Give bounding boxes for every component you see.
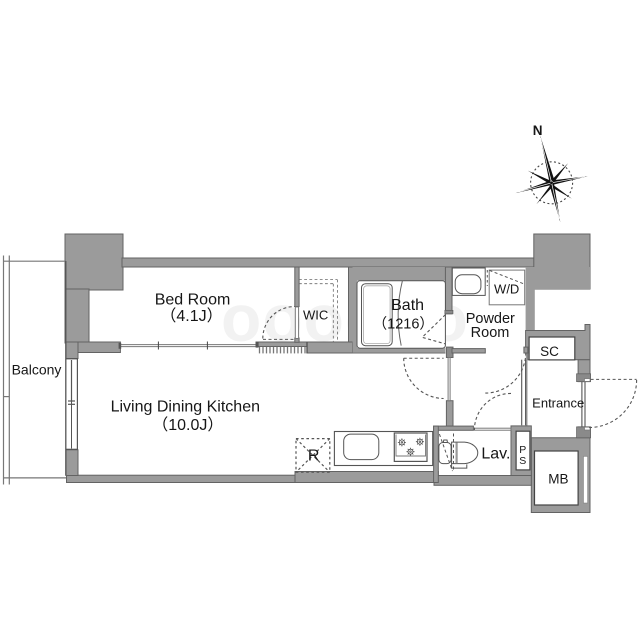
svg-text:（4.1J）: （4.1J） bbox=[160, 307, 222, 325]
svg-text:（1216）: （1216） bbox=[373, 316, 434, 333]
svg-text:Bed Room: Bed Room bbox=[155, 292, 231, 309]
svg-text:Living Dining Kitchen: Living Dining Kitchen bbox=[111, 399, 260, 416]
svg-text:R: R bbox=[308, 448, 320, 465]
svg-text:Bath: Bath bbox=[391, 297, 424, 314]
svg-text:Entrance: Entrance bbox=[532, 396, 584, 411]
svg-text:S: S bbox=[519, 455, 526, 467]
svg-text:（10.0J）: （10.0J） bbox=[152, 416, 223, 434]
svg-text:N: N bbox=[533, 123, 543, 138]
svg-text:Lav.: Lav. bbox=[481, 446, 510, 463]
svg-text:SC: SC bbox=[540, 344, 559, 359]
svg-text:MB: MB bbox=[548, 472, 568, 487]
svg-text:Room: Room bbox=[471, 325, 510, 341]
svg-text:W/D: W/D bbox=[494, 281, 519, 296]
svg-text:Balcony: Balcony bbox=[12, 361, 62, 377]
svg-text:WIC: WIC bbox=[303, 308, 328, 323]
